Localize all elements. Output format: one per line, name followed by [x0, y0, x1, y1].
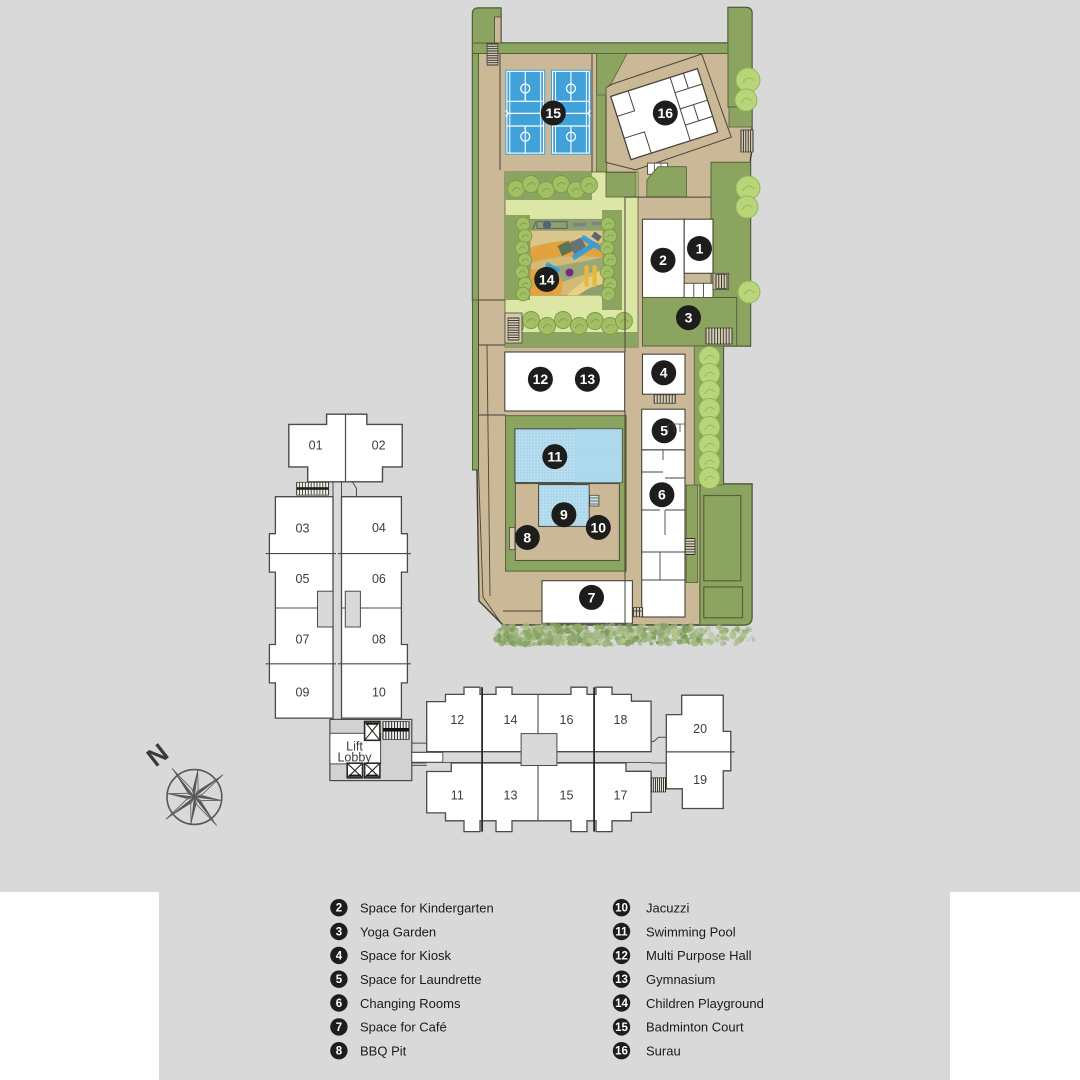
svg-text:12: 12 — [615, 950, 628, 962]
svg-text:Space for Café: Space for Café — [360, 1020, 447, 1035]
svg-text:07: 07 — [296, 633, 310, 647]
svg-text:15: 15 — [546, 105, 562, 121]
svg-text:7: 7 — [336, 1022, 342, 1034]
svg-text:13: 13 — [580, 371, 596, 387]
svg-text:12: 12 — [450, 713, 464, 727]
svg-text:03: 03 — [296, 521, 310, 535]
svg-text:Space for Kiosk: Space for Kiosk — [360, 948, 452, 963]
svg-text:Swimming Pool: Swimming Pool — [646, 924, 736, 939]
svg-text:2: 2 — [659, 252, 667, 268]
svg-text:Space for Laundrette: Space for Laundrette — [360, 972, 481, 987]
svg-text:15: 15 — [560, 788, 574, 802]
svg-text:11: 11 — [615, 927, 628, 939]
svg-text:Jacuzzi: Jacuzzi — [646, 901, 689, 916]
svg-text:10: 10 — [591, 519, 607, 535]
svg-text:16: 16 — [658, 105, 674, 121]
svg-text:14: 14 — [504, 713, 518, 727]
svg-text:6: 6 — [336, 998, 342, 1010]
svg-text:4: 4 — [336, 950, 343, 962]
svg-text:14: 14 — [539, 271, 555, 287]
svg-text:Changing Rooms: Changing Rooms — [360, 996, 461, 1011]
svg-text:8: 8 — [523, 529, 531, 545]
svg-text:14: 14 — [615, 998, 628, 1010]
svg-text:05: 05 — [296, 572, 310, 586]
svg-text:15: 15 — [615, 1022, 628, 1034]
svg-text:08: 08 — [372, 633, 386, 647]
svg-text:2: 2 — [336, 903, 342, 915]
svg-text:Gymnasium: Gymnasium — [646, 972, 715, 987]
svg-text:06: 06 — [372, 572, 386, 586]
svg-text:10: 10 — [372, 685, 386, 699]
svg-text:02: 02 — [372, 439, 386, 453]
svg-text:3: 3 — [685, 310, 693, 326]
svg-text:Children Playground: Children Playground — [646, 996, 764, 1011]
svg-text:19: 19 — [693, 773, 707, 787]
svg-text:Badminton Court: Badminton Court — [646, 1020, 744, 1035]
svg-text:20: 20 — [693, 722, 707, 736]
svg-text:Surau: Surau — [646, 1044, 681, 1059]
svg-text:7: 7 — [588, 589, 596, 605]
svg-text:13: 13 — [615, 974, 628, 986]
svg-text:17: 17 — [614, 788, 628, 802]
svg-text:16: 16 — [560, 713, 574, 727]
svg-text:01: 01 — [309, 439, 323, 453]
svg-text:Yoga Garden: Yoga Garden — [360, 924, 436, 939]
svg-text:18: 18 — [614, 713, 628, 727]
svg-text:BBQ Pit: BBQ Pit — [360, 1044, 407, 1059]
svg-text:04: 04 — [372, 521, 386, 535]
svg-text:9: 9 — [560, 507, 568, 523]
svg-text:4: 4 — [660, 365, 668, 381]
svg-text:09: 09 — [296, 685, 310, 699]
svg-text:12: 12 — [533, 371, 549, 387]
svg-text:8: 8 — [336, 1046, 343, 1058]
svg-text:Space for Kindergarten: Space for Kindergarten — [360, 901, 494, 916]
svg-text:6: 6 — [658, 487, 666, 503]
svg-text:1: 1 — [696, 240, 704, 256]
svg-text:Multi Purpose Hall: Multi Purpose Hall — [646, 948, 752, 963]
svg-text:3: 3 — [336, 927, 342, 939]
svg-text:11: 11 — [547, 449, 562, 465]
svg-text:5: 5 — [660, 423, 668, 439]
svg-text:10: 10 — [615, 903, 628, 915]
svg-text:11: 11 — [451, 788, 464, 802]
svg-text:16: 16 — [615, 1046, 628, 1058]
svg-text:5: 5 — [336, 974, 343, 986]
svg-text:13: 13 — [504, 788, 518, 802]
